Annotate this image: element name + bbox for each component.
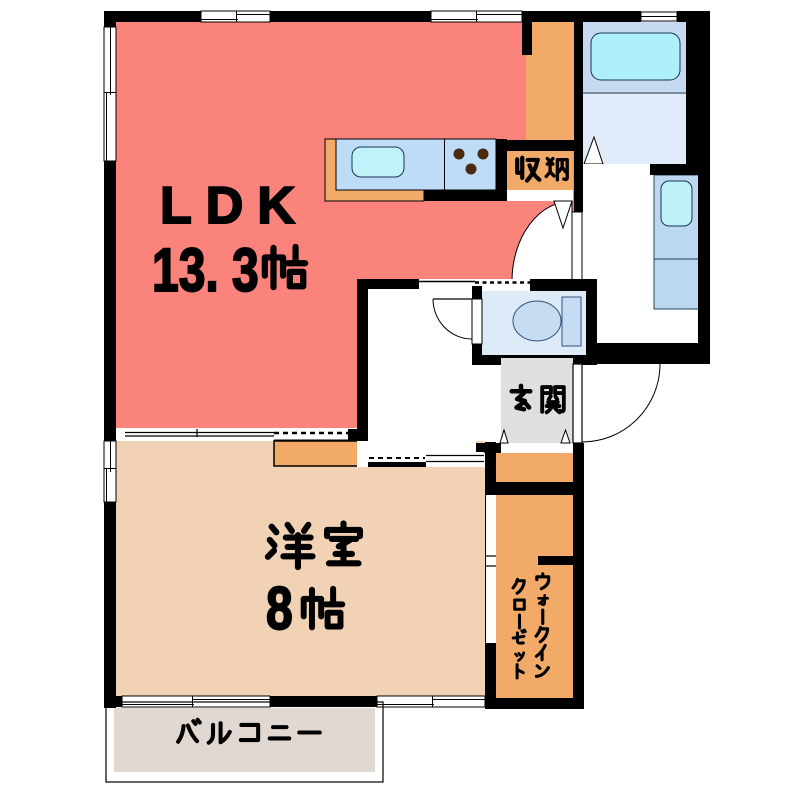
svg-text:LDK: LDK: [160, 177, 309, 235]
svg-text:13. 3: 13. 3: [152, 235, 259, 304]
svg-text:8: 8: [266, 575, 293, 642]
